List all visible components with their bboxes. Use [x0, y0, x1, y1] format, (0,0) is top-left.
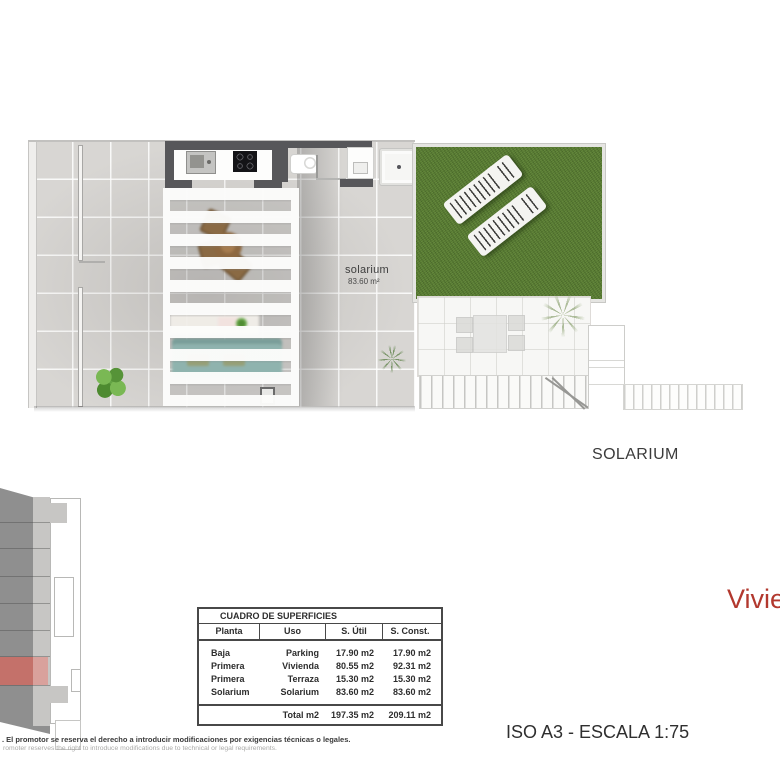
disclaimer-es: . El promotor se reserva el derecho a in…	[2, 735, 350, 744]
floor-title: SOLARIUM	[592, 446, 679, 464]
washbasin-wall	[340, 179, 373, 187]
wall-pier	[281, 141, 288, 182]
room-area-value: 83.60 m²	[345, 277, 389, 286]
cell-total-const: 209.11 m2	[382, 709, 437, 721]
table-row: Baja Parking 17.90 m2 17.90 m2	[199, 647, 441, 660]
plan-bottom-shadow	[34, 406, 415, 412]
keyplan-divider	[0, 548, 50, 549]
table-total-row: Total m2 197.35 m2 209.11 m2	[199, 704, 441, 724]
washbasin-unit	[347, 147, 374, 179]
surface-table: CUADRO DE SUPERFICIES Planta Uso S. Útil…	[197, 607, 443, 726]
keyplan-divider	[0, 522, 50, 523]
shower-tray	[380, 149, 417, 185]
cell-util: 15.30 m2	[325, 673, 382, 686]
cell-util: 17.90 m2	[325, 647, 382, 660]
table-row: Primera Terraza 15.30 m2 15.30 m2	[199, 673, 441, 686]
stair-break-line	[552, 377, 585, 409]
divider-wall	[78, 145, 83, 261]
cell-empty	[199, 709, 259, 721]
room-name: solarium	[345, 264, 389, 277]
cell-uso: Parking	[259, 647, 325, 660]
landing-outline	[588, 325, 625, 409]
bush-plant	[92, 364, 129, 401]
col-header-util: S. Útil	[325, 624, 382, 639]
cell-planta: Solarium	[199, 686, 259, 699]
keyplan-divider	[0, 630, 50, 631]
col-header-const: S. Const.	[382, 624, 437, 639]
kitchen-wall	[165, 180, 192, 188]
table-body: Baja Parking 17.90 m2 17.90 m2 Primera V…	[199, 641, 441, 704]
cell-const: 17.90 m2	[382, 647, 437, 660]
toilet-fixture	[290, 154, 318, 174]
room-area-label: solarium 83.60 m²	[345, 264, 389, 286]
pergola	[163, 188, 299, 406]
palm-plant	[541, 293, 585, 337]
toilet-partition	[316, 155, 318, 179]
keyplan-divider	[0, 603, 50, 604]
palm-plant	[378, 345, 406, 373]
keyplan-notch	[50, 503, 67, 523]
cell-planta: Baja	[199, 647, 259, 660]
scale-label: ISO A3 - ESCALA 1:75	[506, 722, 689, 743]
kitchen-wall	[254, 180, 282, 188]
pergola-rail	[291, 188, 299, 406]
step-line	[589, 384, 624, 385]
kitchen-hob	[233, 151, 257, 172]
table-row: Solarium Solarium 83.60 m2 83.60 m2	[199, 686, 441, 699]
disclaimer-en: romoter reserves the right to introduce …	[3, 745, 277, 752]
kitchen-wall	[165, 141, 282, 150]
lawn-area	[413, 144, 605, 302]
keyplan-highlighted-unit	[0, 657, 33, 685]
kitchen-sink	[186, 151, 216, 174]
col-header-planta: Planta	[199, 624, 259, 639]
cell-uso: Terraza	[259, 673, 325, 686]
cell-planta: Primera	[199, 660, 259, 673]
cell-util: 80.55 m2	[325, 660, 382, 673]
col-header-uso: Uso	[259, 624, 325, 639]
step-line	[589, 360, 624, 361]
table-row: Primera Vivienda 80.55 m2 92.31 m2	[199, 660, 441, 673]
cell-const: 83.60 m2	[382, 686, 437, 699]
side-staircase	[623, 384, 743, 410]
plan-sheet: solarium 83.60 m² SOLARIUM CUADRO DE SUP…	[0, 0, 780, 780]
dining-chair	[456, 317, 473, 333]
cell-uso: Vivienda	[259, 660, 325, 673]
unit-title: Vivienda	[727, 584, 780, 615]
divider-wall-tick	[79, 261, 105, 263]
dining-table	[473, 315, 507, 353]
table-title: CUADRO DE SUPERFICIES	[199, 609, 441, 624]
pergola-rail	[163, 188, 170, 406]
keyplan-divider	[0, 656, 50, 657]
keyplan-divider	[0, 576, 50, 577]
step-line	[589, 367, 624, 368]
cell-util: 83.60 m2	[325, 686, 382, 699]
cell-planta: Primera	[199, 673, 259, 686]
keyplan-outline-step	[71, 669, 81, 692]
cell-uso: Solarium	[259, 686, 325, 699]
dining-chair	[508, 315, 525, 331]
pergola-shadow	[297, 148, 343, 406]
dining-chair	[508, 335, 525, 351]
keyplan-inner-outline	[54, 577, 74, 637]
cell-total-util: 197.35 m2	[325, 709, 382, 721]
keyplan-divider	[0, 685, 50, 686]
cell-total-label: Total m2	[259, 709, 325, 721]
cell-const: 15.30 m2	[382, 673, 437, 686]
cell-const: 92.31 m2	[382, 660, 437, 673]
table-header: Planta Uso S. Útil S. Const.	[199, 624, 441, 641]
keyplan-band	[33, 497, 50, 726]
plan-left-edge	[28, 141, 37, 408]
dining-chair	[456, 337, 473, 353]
pergola-slats	[163, 188, 299, 406]
staircase	[419, 375, 591, 409]
divider-wall	[78, 287, 83, 407]
keyplan-notch	[50, 686, 68, 703]
keyplan-highlighted-unit	[33, 657, 48, 685]
